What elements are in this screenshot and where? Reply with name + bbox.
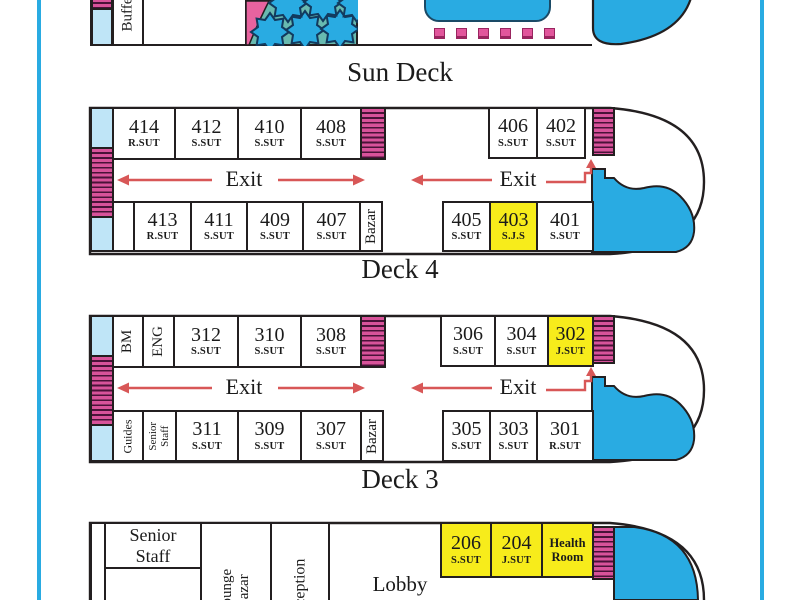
room-type: S.SUT xyxy=(204,231,234,243)
room-number: 302 xyxy=(556,324,586,346)
room-407: 407 S.SUT xyxy=(302,201,361,252)
health-line: Health xyxy=(549,536,585,550)
bazar-room: Bazar xyxy=(359,201,383,252)
senior-staff-line2: Staff xyxy=(159,422,171,451)
room-number: 409 xyxy=(260,210,290,232)
deck3-title: Deck 3 xyxy=(300,464,500,495)
stairs xyxy=(360,107,386,160)
exit-label: Exit xyxy=(212,166,276,192)
room-type: S.SUT xyxy=(507,346,537,358)
exit-arrow-bent xyxy=(546,366,600,392)
room-type: R.SUT xyxy=(128,138,160,150)
eng-room: ENG xyxy=(142,315,175,368)
room-312: 312 S.SUT xyxy=(173,315,239,368)
room-type: S.SUT xyxy=(546,138,576,150)
room-number: 311 xyxy=(192,419,221,441)
senior-staff-room: Senior Staff xyxy=(104,522,202,569)
stairs xyxy=(592,526,615,580)
stern-section xyxy=(90,216,114,252)
lounger xyxy=(544,28,555,39)
room-307: 307 S.SUT xyxy=(300,410,362,462)
room-304: 304 S.SUT xyxy=(494,315,549,367)
exit-arrow-right xyxy=(278,381,366,395)
room-number: 204 xyxy=(502,533,532,555)
room-number: 308 xyxy=(316,325,346,347)
bm-label: BM xyxy=(120,330,137,353)
deck2-bow-area xyxy=(614,527,698,600)
room-type: S.SUT xyxy=(192,138,222,150)
stern-section xyxy=(90,107,114,149)
room-401: 401 S.SUT xyxy=(536,201,594,252)
room-305: 305 S.SUT xyxy=(442,410,491,462)
senior-staff-line2: Staff xyxy=(130,546,177,567)
exit-label: Exit xyxy=(490,374,546,400)
room-number: 402 xyxy=(546,116,576,138)
room-number: 413 xyxy=(148,210,178,232)
room-type: S.SUT xyxy=(499,441,529,453)
room-number: 309 xyxy=(255,419,285,441)
room-line: Room xyxy=(549,550,585,564)
room-204-highlighted: 204 J.SUT xyxy=(490,522,543,578)
senior-staff-line1: Senior xyxy=(147,422,159,451)
stern-section xyxy=(90,424,114,462)
stern-section xyxy=(90,315,114,357)
room-type: R.SUT xyxy=(147,231,179,243)
lounger xyxy=(522,28,533,39)
lounger xyxy=(456,28,467,39)
room-type: R.SUT xyxy=(549,441,581,453)
reception-label-wrap: Reception xyxy=(270,556,330,600)
bazar-line: Bazar xyxy=(236,569,253,600)
room-303: 303 S.SUT xyxy=(489,410,538,462)
page-border-right xyxy=(760,0,764,600)
room-number: 411 xyxy=(204,210,233,232)
room-type: S.SUT xyxy=(316,441,346,453)
room-number: 408 xyxy=(316,117,346,139)
room-type: S.SUT xyxy=(316,346,346,358)
pool xyxy=(424,0,551,22)
lounge-line: Lounge xyxy=(219,569,236,600)
stairs xyxy=(592,315,615,364)
room-type: J.SUT xyxy=(502,555,531,567)
room-302-highlighted: 302 J.SUT xyxy=(547,315,594,367)
room-413: 413 R.SUT xyxy=(133,201,192,252)
lounge-bazar-label-wrap: Lounge Bazar xyxy=(200,557,272,600)
senior-staff-line1: Senior xyxy=(130,525,177,546)
room-412: 412 S.SUT xyxy=(174,107,239,160)
page-border-left xyxy=(37,0,41,600)
room-type: S.SUT xyxy=(453,346,483,358)
room-type: S.SUT xyxy=(498,138,528,150)
room-402: 402 S.SUT xyxy=(536,107,586,159)
bazar-label: Bazar xyxy=(363,209,380,244)
lounger xyxy=(434,28,445,39)
room-number: 410 xyxy=(255,117,285,139)
deck-plan-diagram: Buffet Sun Deck 414 R.SUT 412 S.SUT xyxy=(0,0,800,600)
stairs xyxy=(90,147,114,218)
room-type: S.SUT xyxy=(452,441,482,453)
exit-label: Exit xyxy=(212,374,276,400)
buffet-room: Buffet xyxy=(112,0,144,46)
room-405: 405 S.SUT xyxy=(442,201,491,252)
room-414: 414 R.SUT xyxy=(112,107,176,160)
sun-deck-title: Sun Deck xyxy=(300,57,500,88)
room-306: 306 S.SUT xyxy=(440,315,496,367)
room-number: 303 xyxy=(499,419,529,441)
room-number: 403 xyxy=(499,210,529,232)
exit-arrow-left xyxy=(410,381,492,395)
bazar-room: Bazar xyxy=(360,410,384,462)
senior-staff-label: Senior Staff xyxy=(147,422,172,451)
room-406: 406 S.SUT xyxy=(488,107,538,159)
room-type: S.SUT xyxy=(255,441,285,453)
buffet-label: Buffet xyxy=(120,0,137,31)
reception-label: Reception xyxy=(291,559,309,600)
room-number: 310 xyxy=(255,325,285,347)
exit-arrow-bent xyxy=(546,158,600,184)
room-number: 405 xyxy=(452,210,482,232)
room-408: 408 S.SUT xyxy=(300,107,362,160)
mosaic-pattern xyxy=(245,0,358,46)
stairs xyxy=(360,315,386,368)
room-type: J.SUT xyxy=(556,346,585,358)
room-308: 308 S.SUT xyxy=(300,315,362,368)
stairs xyxy=(90,355,114,426)
room-410: 410 S.SUT xyxy=(237,107,302,160)
room-number: 206 xyxy=(451,533,481,555)
room-type: S.SUT xyxy=(192,441,222,453)
health-room-label: Health Room xyxy=(549,536,585,565)
room-number: 407 xyxy=(317,210,347,232)
empty-cell xyxy=(112,201,135,252)
exit-arrow-left xyxy=(410,173,492,187)
guides-room: Guides xyxy=(112,410,144,462)
room-number: 401 xyxy=(550,210,580,232)
room-number: 301 xyxy=(550,419,580,441)
stairs xyxy=(592,107,615,156)
sun-deck-bow xyxy=(591,0,703,50)
room-type: S.SUT xyxy=(255,138,285,150)
room-type: S.J.S xyxy=(502,231,525,243)
room-311: 311 S.SUT xyxy=(175,410,239,462)
room-number: 304 xyxy=(507,324,537,346)
room-403-highlighted: 403 S.J.S xyxy=(489,201,538,252)
bazar-label: Bazar xyxy=(364,419,381,454)
lounger xyxy=(500,28,511,39)
lounger xyxy=(478,28,489,39)
room-409: 409 S.SUT xyxy=(246,201,304,252)
room-number: 414 xyxy=(129,117,159,139)
room-310: 310 S.SUT xyxy=(237,315,302,368)
room-type: S.SUT xyxy=(451,555,481,567)
room-301: 301 R.SUT xyxy=(536,410,594,462)
room-number: 406 xyxy=(498,116,528,138)
room-number: 312 xyxy=(191,325,221,347)
room-type: S.SUT xyxy=(260,231,290,243)
room-number: 305 xyxy=(452,419,482,441)
health-room: Health Room xyxy=(541,522,594,578)
room-309: 309 S.SUT xyxy=(237,410,302,462)
empty-cell xyxy=(104,567,202,600)
eng-label: ENG xyxy=(150,326,167,357)
stern-section xyxy=(91,8,113,46)
room-type: S.SUT xyxy=(191,346,221,358)
room-type: S.SUT xyxy=(255,346,285,358)
bm-room: BM xyxy=(112,315,144,368)
room-number: 412 xyxy=(192,117,222,139)
exit-arrow-left xyxy=(116,173,212,187)
exit-label: Exit xyxy=(490,166,546,192)
room-number: 306 xyxy=(453,324,483,346)
lounge-bazar-label: Lounge Bazar xyxy=(219,569,253,600)
room-411: 411 S.SUT xyxy=(190,201,248,252)
senior-staff-label: Senior Staff xyxy=(130,525,177,566)
room-type: S.SUT xyxy=(550,231,580,243)
room-type: S.SUT xyxy=(452,231,482,243)
room-type: S.SUT xyxy=(316,138,346,150)
room-number: 307 xyxy=(316,419,346,441)
senior-staff-room: Senior Staff xyxy=(142,410,177,462)
deck4-title: Deck 4 xyxy=(300,254,500,285)
room-type: S.SUT xyxy=(317,231,347,243)
exit-arrow-right xyxy=(278,173,366,187)
exit-arrow-left xyxy=(116,381,212,395)
room-206-highlighted: 206 S.SUT xyxy=(440,522,492,578)
guides-label: Guides xyxy=(121,419,136,453)
